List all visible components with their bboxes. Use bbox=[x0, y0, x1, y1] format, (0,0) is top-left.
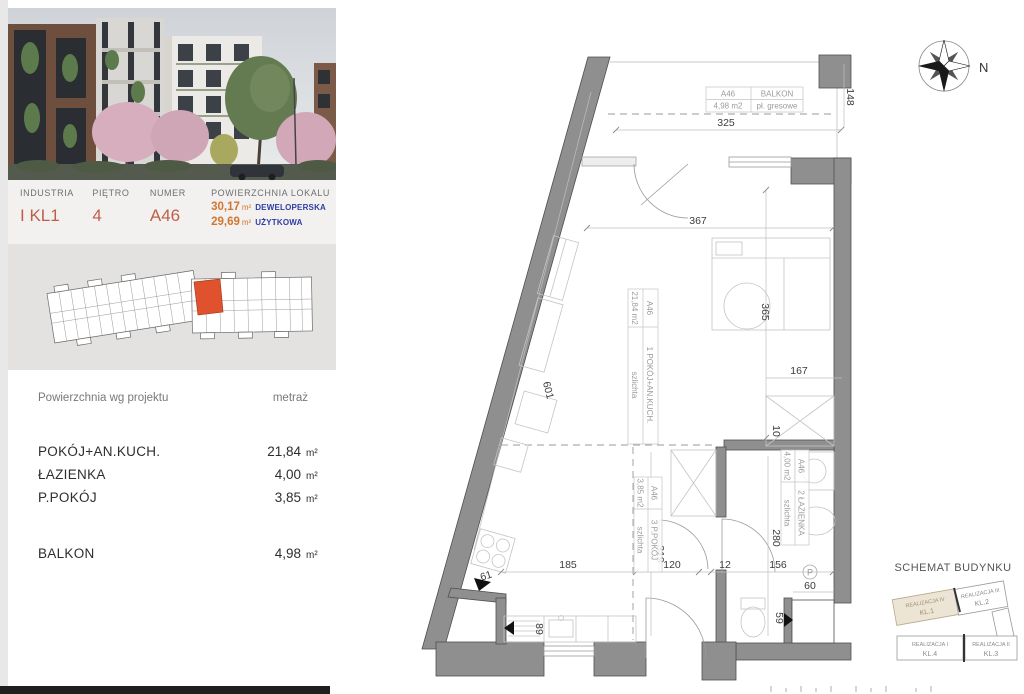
row-label: POKÓJ+AN.KUCH. bbox=[38, 444, 160, 459]
svg-text:KL.3: KL.3 bbox=[984, 651, 999, 658]
wall-right bbox=[834, 158, 851, 603]
svg-text:1 POKÓJ+AN.KUCH.: 1 POKÓJ+AN.KUCH. bbox=[645, 347, 654, 424]
balcony-door-leaf bbox=[641, 164, 688, 205]
area-developer-value: 30,17 bbox=[211, 201, 240, 213]
row-unit: m² bbox=[306, 550, 322, 561]
area-usable-name: UŻYTKOWA bbox=[255, 218, 302, 227]
scale-ticks bbox=[771, 686, 931, 692]
area-developer-name: DEWELOPERSKA bbox=[255, 203, 326, 212]
area-usable-value: 29,69 bbox=[211, 216, 240, 228]
row-value: 3,85 bbox=[259, 490, 301, 505]
svg-text:A46: A46 bbox=[645, 301, 654, 316]
svg-text:KL.4: KL.4 bbox=[923, 651, 938, 658]
wall-diagonal bbox=[422, 57, 610, 649]
area-usable-unit: m² bbox=[242, 218, 251, 227]
row-unit: m² bbox=[306, 471, 322, 482]
left-border bbox=[0, 0, 8, 694]
investment-value: I KL1 bbox=[20, 206, 92, 226]
svg-text:4,98 m2: 4,98 m2 bbox=[714, 102, 743, 111]
svg-text:4,00 m2: 4,00 m2 bbox=[783, 452, 792, 481]
dim-325: 325 bbox=[717, 117, 735, 129]
dim-156: 156 bbox=[769, 559, 787, 571]
svg-text:3,85 m2: 3,85 m2 bbox=[636, 479, 645, 508]
room-bath-label: A46 2 ŁAZIENKA 4,00 m2 szlichta bbox=[781, 450, 809, 545]
pion-symbol: P bbox=[807, 568, 813, 578]
wall-balcony-pier bbox=[819, 55, 851, 88]
svg-text:2 ŁAZIENKA: 2 ŁAZIENKA bbox=[797, 490, 806, 536]
svg-text:A46: A46 bbox=[721, 90, 736, 99]
row-label: ŁAZIENKA bbox=[38, 467, 106, 482]
number-value: A46 bbox=[150, 206, 211, 226]
schema-block-kl3: REALIZACJA II KL.3 bbox=[965, 636, 1017, 660]
windows bbox=[544, 157, 791, 656]
table-row: P.POKÓJ 3,85m² bbox=[38, 490, 322, 513]
row-label: BALKON bbox=[38, 546, 95, 561]
room-main-label: A46 1 POKÓJ+AN.KUCH. 21,84 m2 szlichta bbox=[628, 289, 658, 444]
wall-niche-right bbox=[496, 598, 506, 644]
wall-bath-left-lower bbox=[716, 570, 726, 643]
vent-arrows bbox=[474, 578, 793, 635]
dim-167: 167 bbox=[790, 365, 808, 377]
schema-title: SCHEMAT BUDYNKU bbox=[894, 562, 1011, 574]
bottom-bar bbox=[0, 686, 330, 694]
svg-text:A46: A46 bbox=[797, 459, 806, 474]
dim-10: 10 bbox=[770, 425, 782, 437]
area-developer-unit: m² bbox=[242, 203, 251, 212]
balcony-door-arc bbox=[634, 164, 688, 218]
building-photo bbox=[8, 8, 336, 180]
table-row: POKÓJ+AN.KUCH. 21,84m² bbox=[38, 444, 322, 467]
row-value: 4,00 bbox=[259, 467, 301, 482]
sink bbox=[549, 620, 573, 637]
dim-12: 12 bbox=[719, 559, 731, 571]
svg-text:pł. gresowe: pł. gresowe bbox=[757, 102, 798, 111]
dim-185: 185 bbox=[559, 559, 577, 571]
svg-text:A46: A46 bbox=[650, 486, 659, 501]
floor-overview bbox=[8, 244, 336, 370]
area-table: Powierzchnia wg projektu metraż POKÓJ+AN… bbox=[8, 370, 336, 569]
wall-entry-pier bbox=[702, 642, 736, 680]
entry-door-arc bbox=[646, 598, 706, 658]
svg-text:REALIZACJA II: REALIZACJA II bbox=[972, 642, 1010, 648]
svg-text:szlichta: szlichta bbox=[783, 500, 792, 527]
row-label: P.POKÓJ bbox=[38, 490, 97, 505]
room-hall-label: A46 3 P.POKÓJ 3,85 m2 szlichta bbox=[634, 477, 662, 572]
unit-header: INDUSTRIA I KL1 PIĘTRO 4 NUMER A46 POWIE… bbox=[8, 180, 336, 244]
dim-59: 59 bbox=[773, 612, 785, 624]
svg-text:REALIZACJA I: REALIZACJA I bbox=[912, 642, 949, 648]
svg-text:21,84 m2: 21,84 m2 bbox=[630, 291, 639, 325]
dim-148: 148 bbox=[844, 88, 856, 106]
row-unit: m² bbox=[306, 494, 322, 505]
dim-60: 60 bbox=[804, 580, 816, 592]
page: INDUSTRIA I KL1 PIĘTRO 4 NUMER A46 POWIE… bbox=[0, 0, 1024, 694]
wall-bottom-left bbox=[436, 642, 544, 676]
wall-bath-left-upper bbox=[716, 447, 726, 517]
dim-601: 601 bbox=[540, 380, 556, 400]
svg-text:BALKON: BALKON bbox=[761, 90, 794, 99]
wall-bottom-mid bbox=[594, 642, 646, 676]
building-photo-art bbox=[8, 8, 336, 180]
table-header-left: Powierzchnia wg projektu bbox=[38, 392, 168, 404]
selected-unit-highlight bbox=[194, 279, 223, 315]
compass-icon: N bbox=[916, 38, 989, 95]
row-unit: m² bbox=[306, 448, 322, 459]
dim-120: 120 bbox=[663, 559, 681, 571]
schema-block-kl4: REALIZACJA I KL.4 bbox=[897, 636, 963, 660]
schema-block-kl1: REALIZACJA IV KL.1 bbox=[892, 589, 960, 626]
dim-367: 367 bbox=[689, 215, 707, 227]
row-value: 21,84 bbox=[259, 444, 301, 459]
floor-plan: 325 148 367 365 167 10 601 61 185 89 319… bbox=[336, 0, 1024, 694]
table-row-balcony: BALKON 4,98m² bbox=[38, 546, 322, 569]
shaft bbox=[792, 600, 834, 643]
table-row: ŁAZIENKA 4,00m² bbox=[38, 467, 322, 490]
svg-text:3 P.POKÓJ: 3 P.POKÓJ bbox=[650, 520, 659, 560]
compass-north-label: N bbox=[979, 60, 988, 75]
dim-89: 89 bbox=[533, 623, 545, 635]
dim-365: 365 bbox=[759, 303, 771, 321]
svg-text:szlichta: szlichta bbox=[636, 527, 645, 554]
floor-label: PIĘTRO bbox=[92, 188, 150, 198]
dim-280: 280 bbox=[770, 529, 782, 547]
wall-bottom-right bbox=[736, 643, 851, 660]
wall-bath-top bbox=[724, 440, 834, 450]
svg-text:szlichta: szlichta bbox=[630, 372, 639, 399]
floor-overview-plan bbox=[22, 252, 322, 362]
row-value: 4,98 bbox=[259, 546, 301, 561]
number-label: NUMER bbox=[150, 188, 211, 198]
dim-61: 61 bbox=[479, 569, 494, 584]
floor-value: 4 bbox=[92, 206, 150, 226]
building-schema: SCHEMAT BUDYNKU REALIZACJA IV KL.1 REALI… bbox=[892, 562, 1017, 662]
investment-label: INDUSTRIA bbox=[20, 188, 92, 198]
balcony-label: A46 BALKON 4,98 m2 pł. gresowe bbox=[706, 87, 803, 112]
table-header-right: metraż bbox=[273, 392, 308, 404]
floor-plan-svg: 325 148 367 365 167 10 601 61 185 89 319… bbox=[336, 0, 1024, 694]
property-info-panel: INDUSTRIA I KL1 PIĘTRO 4 NUMER A46 POWIE… bbox=[8, 8, 336, 694]
area-label: POWIERZCHNIA LOKALU bbox=[211, 188, 330, 198]
